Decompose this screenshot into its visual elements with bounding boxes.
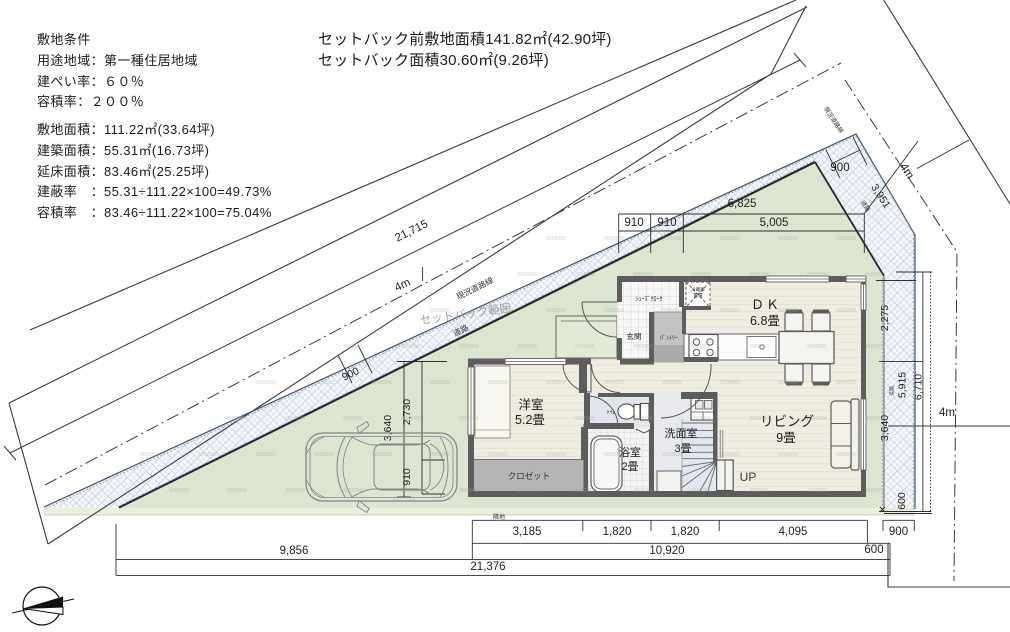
svg-text:8888888: 8888888 — [633, 488, 653, 494]
svg-text:8888888: 8888888 — [749, 416, 769, 422]
svg-text:6,825: 6,825 — [728, 198, 757, 210]
svg-text:8888888: 8888888 — [517, 344, 537, 350]
svg-text:8888888: 8888888 — [807, 488, 827, 494]
svg-text:8888888: 8888888 — [720, 308, 740, 314]
svg-text:8888888: 8888888 — [372, 452, 392, 458]
svg-text:8888888: 8888888 — [807, 272, 827, 278]
svg-text:8888888: 8888888 — [778, 380, 798, 386]
svg-text:2,275: 2,275 — [879, 305, 891, 331]
svg-text:8888888: 8888888 — [517, 416, 537, 422]
svg-text:8888888: 8888888 — [430, 380, 450, 386]
svg-text:1,820: 1,820 — [603, 526, 632, 538]
svg-text:8888888: 8888888 — [604, 308, 624, 314]
svg-text:8888888: 8888888 — [285, 488, 305, 494]
svg-text:600: 600 — [864, 544, 883, 556]
svg-text:8888888: 8888888 — [604, 380, 624, 386]
svg-text:900: 900 — [889, 526, 908, 538]
svg-text:8888888: 8888888 — [836, 380, 856, 386]
svg-text:8888888: 8888888 — [546, 452, 566, 458]
svg-text:8888888: 8888888 — [836, 308, 856, 314]
svg-text:8888888: 8888888 — [372, 380, 392, 386]
svg-text:8888888: 8888888 — [256, 452, 276, 458]
svg-text:8888888: 8888888 — [807, 416, 827, 422]
svg-text:910: 910 — [624, 217, 643, 229]
svg-text:8888888: 8888888 — [749, 272, 769, 278]
svg-text:8888888: 8888888 — [198, 452, 218, 458]
svg-text:ｼｭｰｽﾞｸﾛｰｸ: ｼｭｰｽﾞｸﾛｰｸ — [635, 296, 662, 303]
svg-text:8888888: 8888888 — [488, 308, 508, 314]
svg-text:8888888: 8888888 — [865, 272, 885, 278]
svg-text:隣地: 隣地 — [493, 513, 505, 521]
svg-text:8888888: 8888888 — [749, 488, 769, 494]
svg-text:8888888: 8888888 — [459, 416, 479, 422]
svg-text:8888888: 8888888 — [343, 416, 363, 422]
svg-text:6,710: 6,710 — [913, 374, 925, 400]
svg-text:置場: 置場 — [693, 292, 703, 299]
svg-text:3,640: 3,640 — [382, 415, 394, 441]
svg-text:8888888: 8888888 — [807, 344, 827, 350]
svg-text:600: 600 — [896, 492, 908, 510]
svg-text:21,376: 21,376 — [470, 561, 505, 573]
svg-text:道路: 道路 — [889, 386, 896, 396]
svg-text:8888888: 8888888 — [691, 344, 711, 350]
svg-text:4m: 4m — [939, 407, 955, 419]
svg-text:8888888: 8888888 — [314, 452, 334, 458]
svg-text:8888888: 8888888 — [691, 272, 711, 278]
svg-text:8888888: 8888888 — [865, 488, 885, 494]
svg-text:洋室: 洋室 — [518, 397, 543, 412]
svg-text:8888888: 8888888 — [546, 308, 566, 314]
svg-text:クロゼット: クロゼット — [508, 471, 551, 481]
svg-text:冷蔵庫: 冷蔵庫 — [691, 286, 705, 293]
svg-text:8888888: 8888888 — [169, 488, 189, 494]
svg-text:8888888: 8888888 — [836, 236, 856, 242]
svg-text:910: 910 — [657, 217, 676, 229]
svg-text:8888888: 8888888 — [575, 272, 595, 278]
svg-text:8888888: 8888888 — [488, 452, 508, 458]
svg-text:8888888: 8888888 — [285, 416, 305, 422]
svg-text:8888888: 8888888 — [140, 452, 160, 458]
svg-text:8888888: 8888888 — [662, 308, 682, 314]
svg-text:ﾊﾟﾝﾄﾘｰ: ﾊﾟﾝﾄﾘｰ — [660, 335, 678, 342]
svg-text:8888888: 8888888 — [662, 236, 682, 242]
svg-text:8888888: 8888888 — [459, 488, 479, 494]
svg-text:ＤＫ: ＤＫ — [751, 297, 781, 312]
svg-text:8888888: 8888888 — [343, 344, 363, 350]
svg-text:8888888: 8888888 — [720, 452, 740, 458]
svg-text:8888888: 8888888 — [720, 236, 740, 242]
svg-text:8888888: 8888888 — [430, 308, 450, 314]
svg-text:8888888: 8888888 — [836, 452, 856, 458]
svg-text:8888888: 8888888 — [865, 344, 885, 350]
svg-text:8888888: 8888888 — [749, 344, 769, 350]
svg-text:8888888: 8888888 — [546, 380, 566, 386]
svg-text:8888888: 8888888 — [720, 380, 740, 386]
svg-text:洗面室: 洗面室 — [665, 426, 698, 440]
svg-text:8888888: 8888888 — [778, 308, 798, 314]
svg-text:UP: UP — [740, 470, 757, 484]
svg-text:8888888: 8888888 — [778, 236, 798, 242]
svg-text:8888888: 8888888 — [778, 452, 798, 458]
svg-text:8888888: 8888888 — [633, 272, 653, 278]
svg-text:5,005: 5,005 — [760, 217, 789, 229]
svg-text:玄関: 玄関 — [627, 331, 642, 341]
svg-text:1,820: 1,820 — [671, 526, 700, 538]
svg-text:4,095: 4,095 — [779, 526, 808, 538]
svg-text:8888888: 8888888 — [314, 380, 334, 386]
svg-text:5,915: 5,915 — [897, 372, 909, 398]
svg-text:8888888: 8888888 — [517, 272, 537, 278]
svg-text:3,185: 3,185 — [513, 526, 542, 538]
svg-text:8888888: 8888888 — [401, 344, 421, 350]
svg-text:8888888: 8888888 — [459, 344, 479, 350]
svg-text:6.8畳: 6.8畳 — [750, 314, 780, 328]
svg-text:8888888: 8888888 — [865, 416, 885, 422]
svg-text:8888888: 8888888 — [546, 236, 566, 242]
svg-text:8888888: 8888888 — [517, 488, 537, 494]
svg-text:2畳: 2畳 — [621, 460, 638, 473]
svg-text:900: 900 — [830, 162, 849, 174]
svg-text:8888888: 8888888 — [488, 380, 508, 386]
svg-text:8888888: 8888888 — [604, 452, 624, 458]
svg-text:ﾄｲﾚ: ﾄｲﾚ — [607, 410, 616, 416]
svg-text:8888888: 8888888 — [575, 344, 595, 350]
svg-text:10,920: 10,920 — [649, 545, 684, 557]
svg-text:8888888: 8888888 — [227, 488, 247, 494]
svg-text:8888888: 8888888 — [401, 416, 421, 422]
svg-text:910: 910 — [401, 468, 413, 486]
svg-text:8888888: 8888888 — [633, 416, 653, 422]
svg-text:8888888: 8888888 — [662, 380, 682, 386]
svg-text:8888888: 8888888 — [227, 416, 247, 422]
svg-text:9畳: 9畳 — [776, 431, 795, 445]
svg-text:8888888: 8888888 — [633, 344, 653, 350]
svg-text:8888888: 8888888 — [256, 380, 276, 386]
svg-text:8888888: 8888888 — [691, 416, 711, 422]
svg-text:8888888: 8888888 — [575, 416, 595, 422]
svg-text:8888888: 8888888 — [575, 488, 595, 494]
svg-text:8888888: 8888888 — [662, 452, 682, 458]
svg-text:8888888: 8888888 — [691, 488, 711, 494]
svg-text:8888888: 8888888 — [604, 236, 624, 242]
svg-text:9,856: 9,856 — [280, 545, 309, 557]
